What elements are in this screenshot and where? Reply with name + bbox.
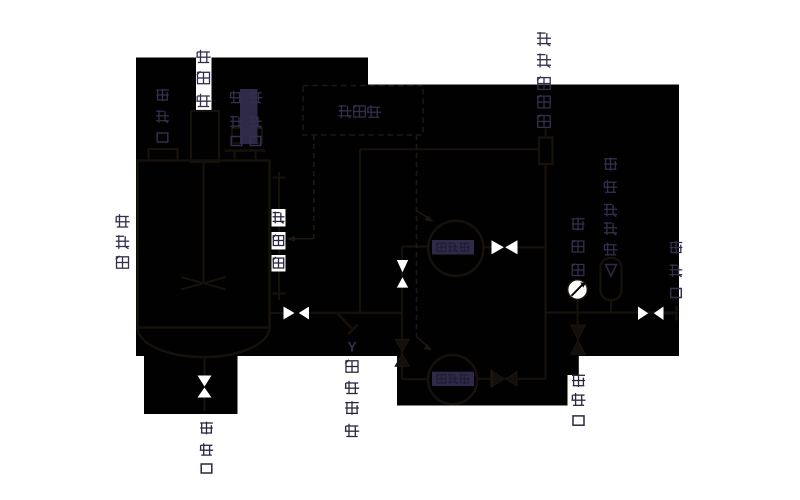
svg-text:Y: Y [347, 339, 357, 355]
